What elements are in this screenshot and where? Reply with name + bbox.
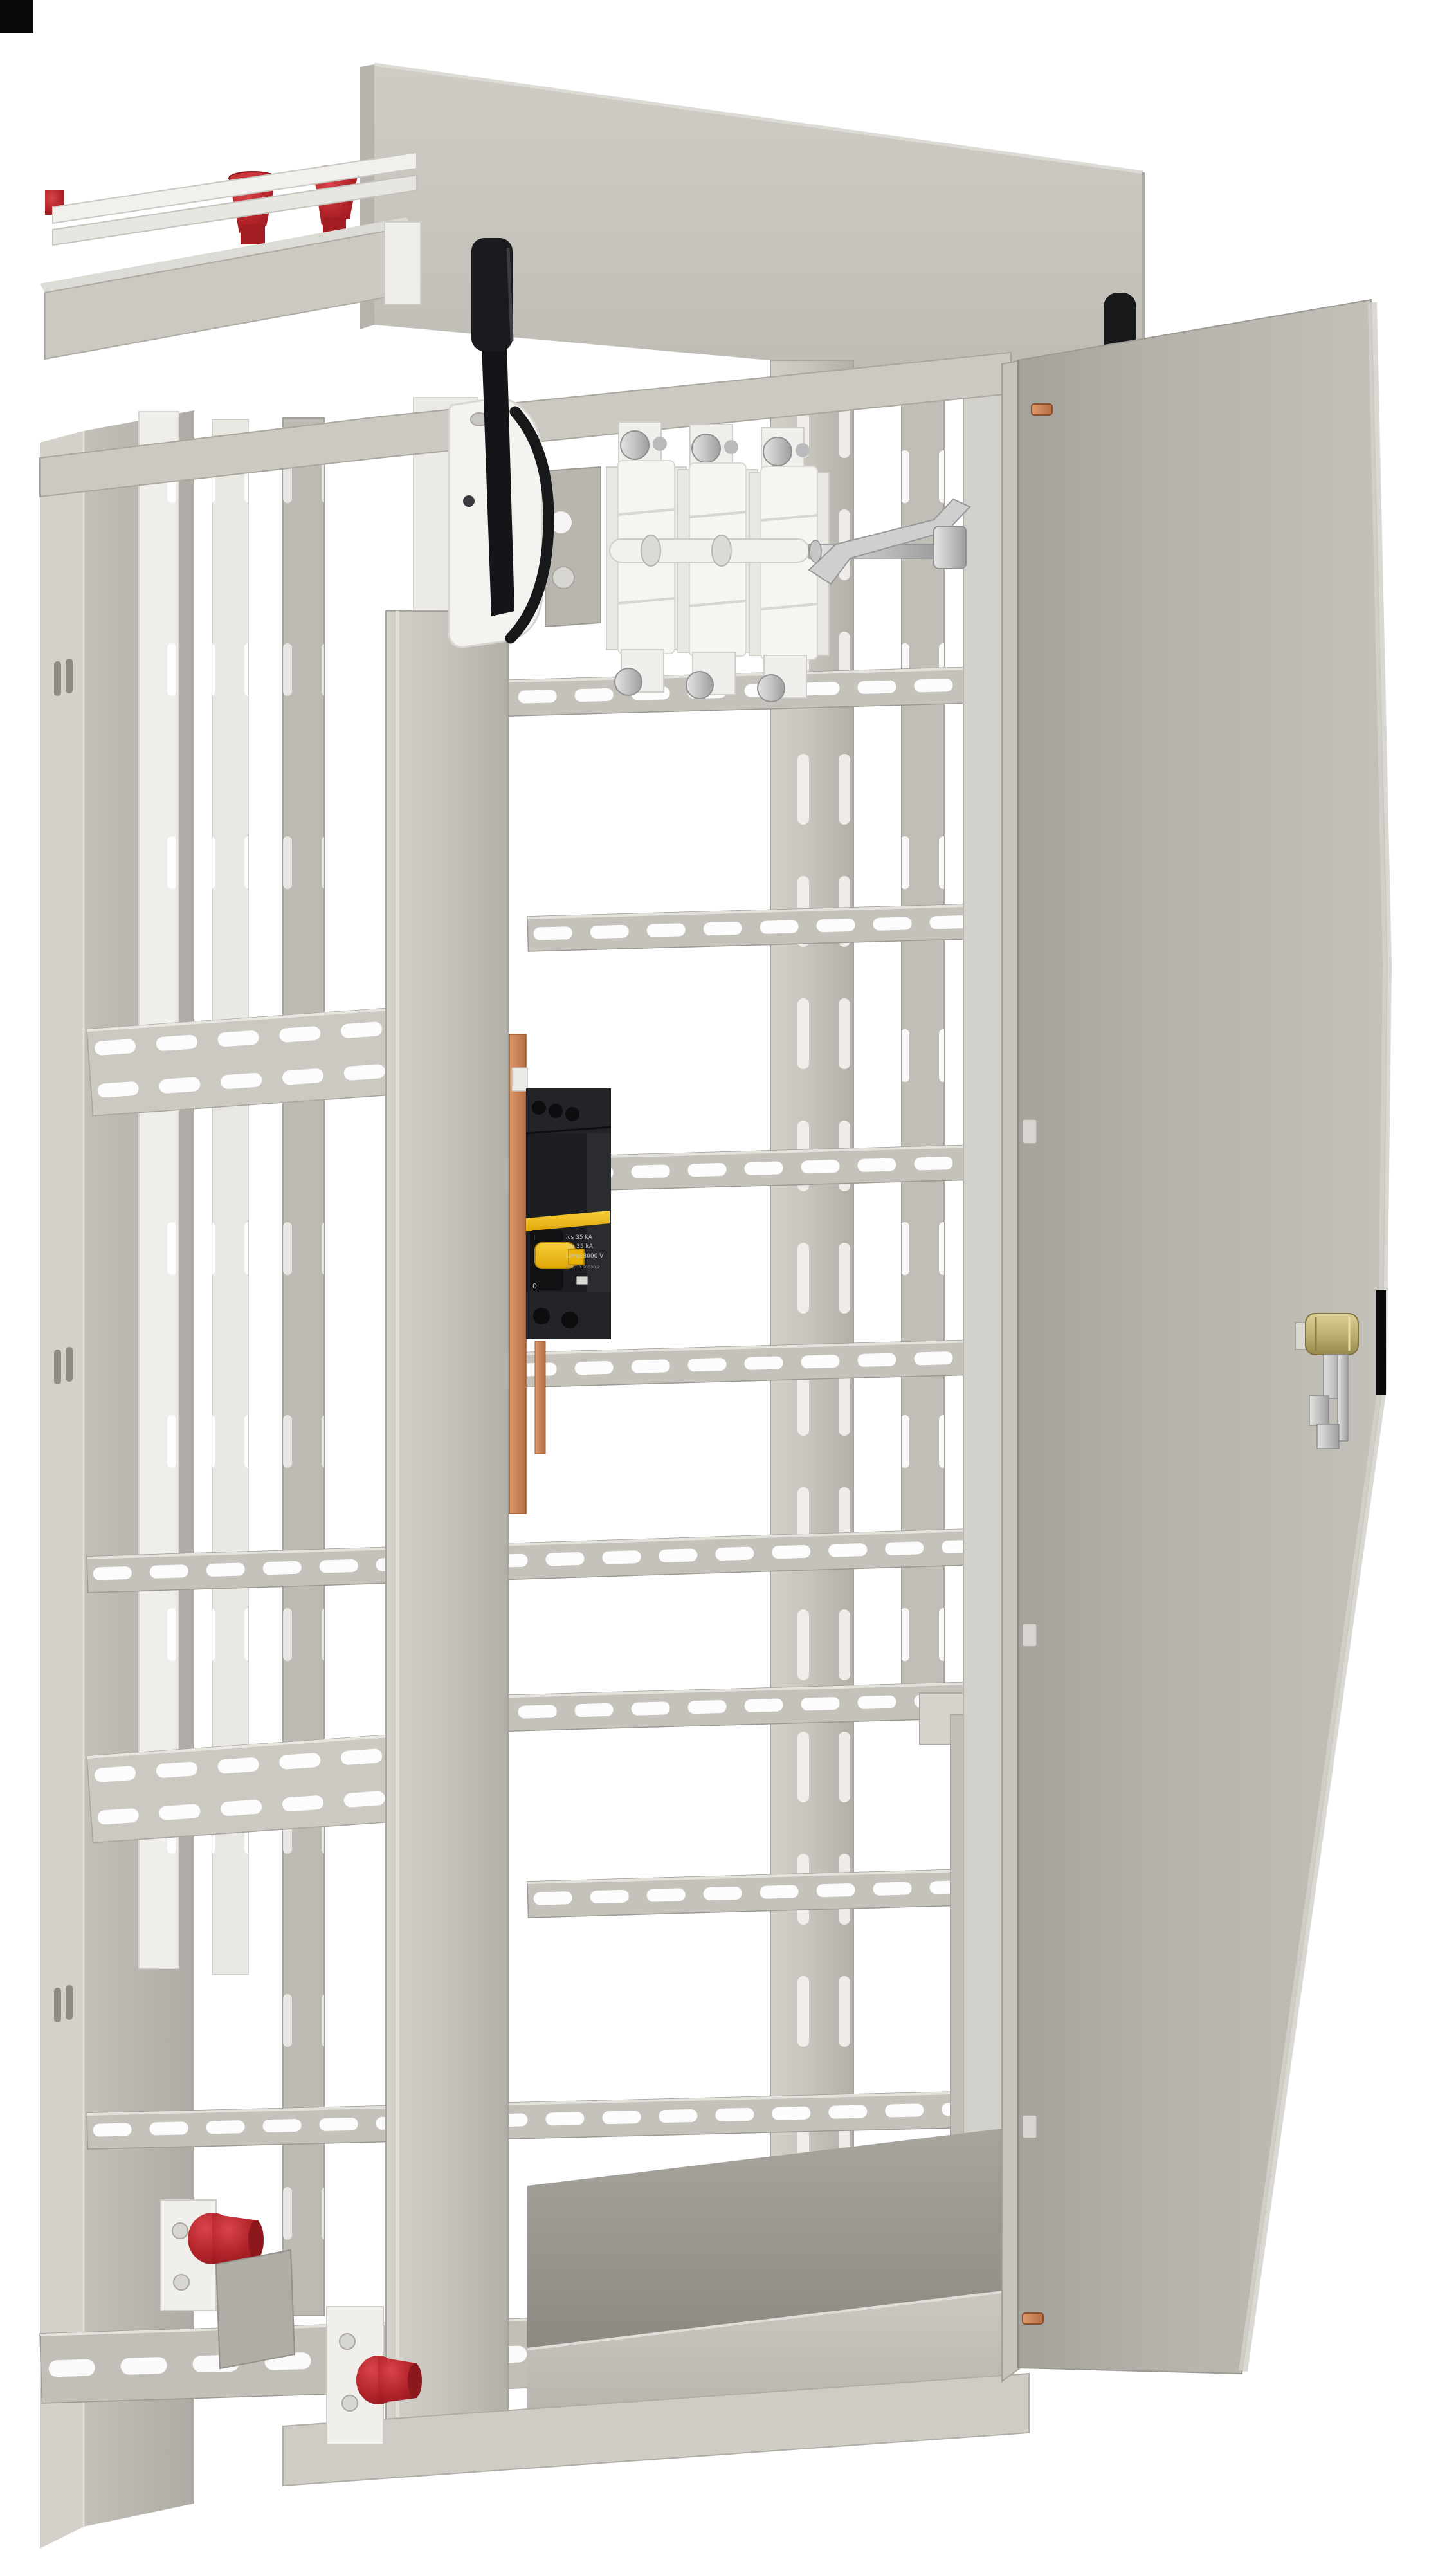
svg-text:Icu 35 kA: Icu 35 kA: [566, 1243, 594, 1250]
breaker-off-mark: 0: [532, 1282, 537, 1290]
lock-cylinder: [1306, 1314, 1358, 1355]
bottom-insulator: [356, 2356, 422, 2404]
breaker-terminals-bottom: [526, 1292, 611, 1339]
svg-text:ГОСТ Р 50030.2: ГОСТ Р 50030.2: [566, 1265, 600, 1270]
switch-mounting-plate: [545, 467, 601, 627]
breaker-terminals-top: [526, 1088, 611, 1133]
svg-text:Ics 35 kA: Ics 35 kA: [566, 1234, 593, 1241]
door-latch-slot: [1376, 1290, 1386, 1395]
corner-mark: [0, 0, 33, 33]
white-channel-right: [212, 419, 248, 1975]
front-trunking-panel: [386, 398, 508, 2451]
lever-plate-dot: [463, 495, 475, 507]
bottom-insulator: [188, 2213, 264, 2264]
rear-column-left: [283, 418, 324, 2316]
white-channel-left: [139, 412, 179, 1968]
render-stage: Floor-standing switchboard cabinet with …: [0, 0, 1456, 2573]
breaker-test-button: [576, 1276, 588, 1285]
vertical-strut-b-upper: [902, 399, 944, 1693]
circuit-breaker: I 0 Ics 35 kA Icu 35 kA Uimp 8000 V ГОСТ…: [526, 1088, 611, 1339]
breaker-on-mark: I: [533, 1234, 535, 1242]
svg-text:Uimp 8000 V: Uimp 8000 V: [566, 1253, 604, 1259]
insulator-plate: [216, 2250, 295, 2368]
